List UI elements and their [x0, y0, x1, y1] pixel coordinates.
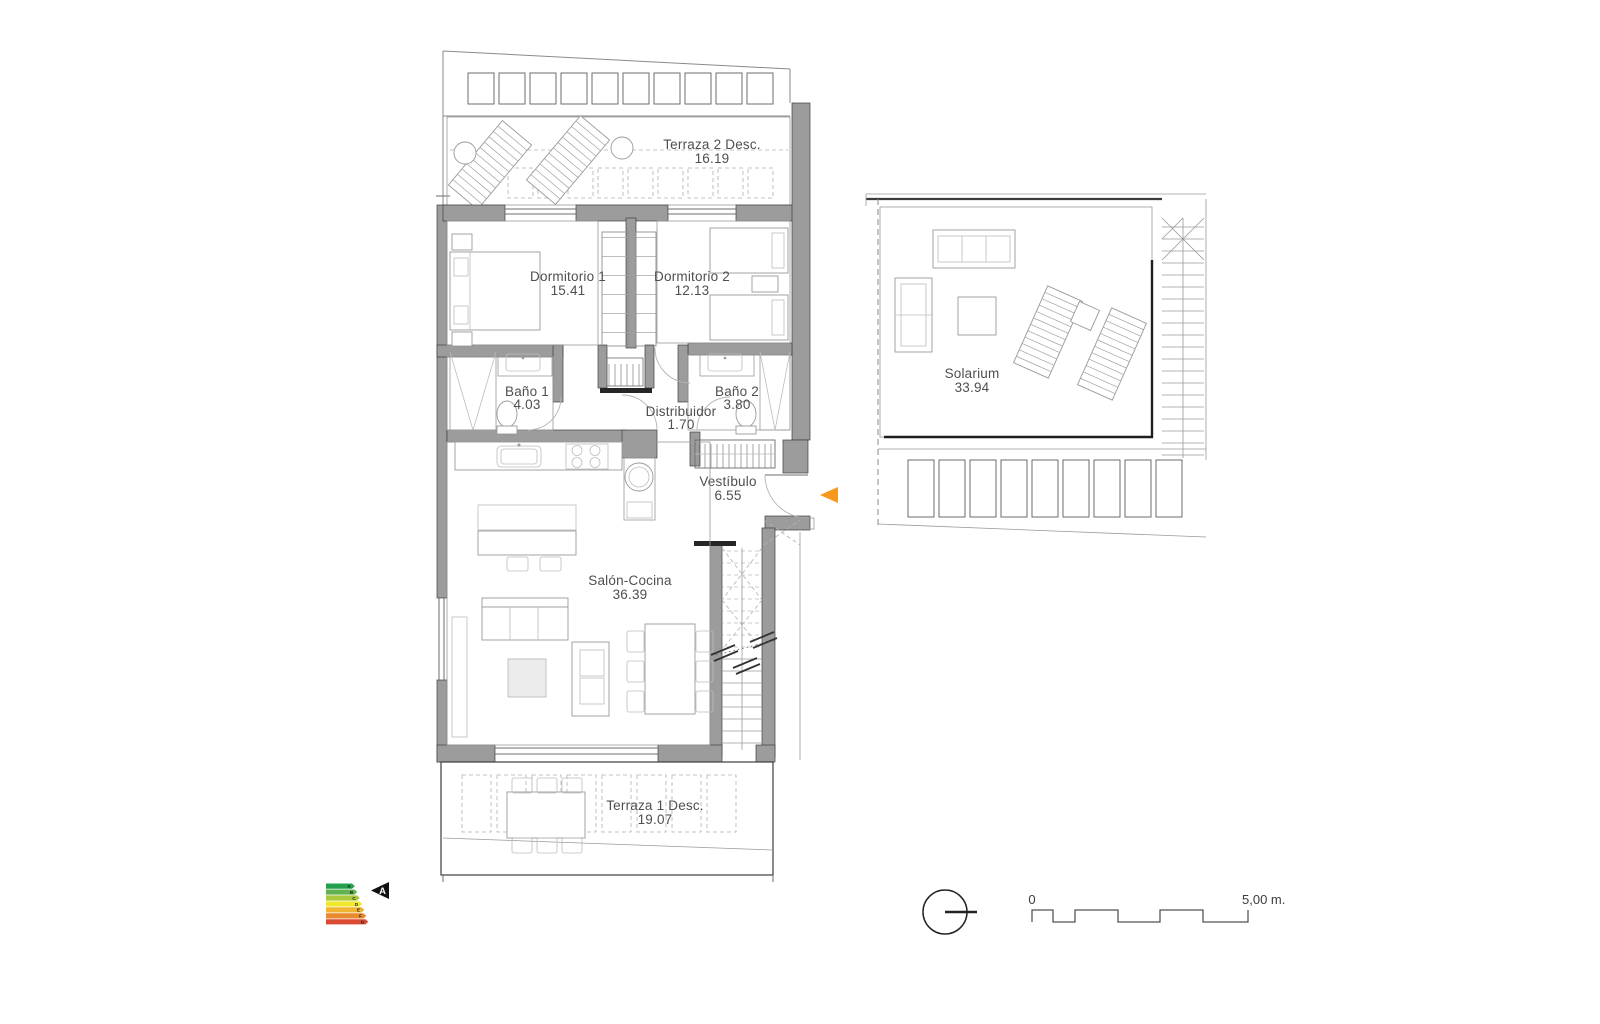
terrace1-slant-line — [443, 838, 773, 850]
room-bano-1: Baño 1 4.03 — [447, 350, 561, 434]
sun-lounger — [448, 121, 531, 210]
energy-letter: E — [357, 908, 360, 913]
single-bed — [710, 228, 788, 273]
room-area-solarium: 33.94 — [955, 380, 990, 395]
stair-arrival — [607, 358, 643, 386]
energy-letter: F — [359, 914, 362, 919]
round-table — [611, 137, 633, 159]
room-area-terraza-2: 16.19 — [695, 151, 730, 166]
room-dormitorio-1: Dormitorio 1 15.41 — [447, 221, 628, 346]
energy-letter: G — [361, 920, 365, 925]
room-label-salon-cocina: Salón-Cocina — [588, 573, 672, 588]
room-label-dormitorio-1: Dormitorio 1 — [530, 269, 606, 284]
scale-bar-zero: 0 — [1028, 892, 1035, 907]
room-area-terraza-1: 19.07 — [638, 812, 673, 827]
room-label-terraza-1: Terraza 1 Desc. — [606, 798, 704, 813]
room-area-distribuidor: 1.70 — [667, 417, 694, 432]
nightstand — [452, 234, 472, 250]
dining-table — [645, 624, 695, 714]
room-area-dormitorio-1: 15.41 — [551, 283, 586, 298]
room-label-vestibulo: Vestíbulo — [699, 474, 756, 489]
coffee-table — [508, 659, 546, 697]
stool — [540, 557, 561, 571]
room-label-dormitorio-2: Dormitorio 2 — [654, 269, 730, 284]
kitchen-island — [478, 505, 576, 530]
room-solarium: Solarium 33.94 — [866, 194, 1206, 537]
shower — [450, 352, 496, 430]
shower — [760, 352, 790, 430]
nightstand — [452, 332, 472, 346]
scale-bar-ruler — [1032, 910, 1248, 922]
room-area-bano-2: 3.80 — [723, 397, 750, 412]
solarium-table — [958, 297, 996, 335]
single-bed — [710, 295, 788, 340]
scale-bar-end: 5,00 m. — [1242, 892, 1285, 907]
room-area-bano-1: 4.03 — [513, 397, 540, 412]
room-area-salon-cocina: 36.39 — [613, 587, 648, 602]
stool — [507, 557, 528, 571]
living-window-west — [439, 598, 444, 680]
double-bed — [450, 252, 540, 330]
room-terraza-2: Terraza 2 Desc. 16.19 — [436, 51, 790, 209]
floor-plan-page: Terraza 2 Desc. 16.19 — [0, 0, 1600, 1024]
sun-lounger — [1014, 286, 1083, 378]
staircase — [711, 532, 800, 760]
round-table — [454, 142, 476, 164]
room-area-dormitorio-2: 12.13 — [675, 283, 710, 298]
room-label-terraza-2: Terraza 2 Desc. — [663, 137, 761, 152]
entrance-door-arc — [765, 475, 808, 518]
floor-plan-svg: Terraza 2 Desc. 16.19 — [0, 0, 1600, 1024]
outdoor-table — [507, 792, 585, 838]
room-label-solarium: Solarium — [945, 366, 1000, 381]
wardrobe — [602, 232, 628, 346]
orientation-symbol — [923, 890, 977, 934]
stair-lintel — [600, 388, 652, 393]
sink — [708, 354, 742, 371]
stair-lintel — [694, 541, 736, 546]
wardrobe — [636, 232, 656, 346]
sofa-back — [482, 598, 568, 607]
tv-unit — [452, 617, 467, 737]
room-dormitorio-2: Dormitorio 2 12.13 — [636, 221, 790, 346]
sofa — [482, 607, 568, 640]
room-area-vestibulo: 6.55 — [714, 488, 741, 503]
energy-rating-current: A — [379, 886, 386, 897]
loveseat — [572, 642, 609, 716]
pergola-squares — [468, 73, 773, 104]
energy-rating-label: A B C D E F G A — [326, 882, 389, 925]
solarium-slats — [908, 460, 1182, 517]
nightstand — [752, 276, 778, 292]
scale-bar: 0 5,00 m. — [1028, 892, 1285, 922]
entrance-arrow-icon — [820, 487, 838, 503]
room-bano-2: Baño 2 3.80 — [688, 350, 790, 434]
terrace-sliding-door — [495, 748, 658, 754]
room-salon-cocina: Salón-Cocina 36.39 — [447, 442, 713, 745]
room-terraza-1: Terraza 1 Desc. 19.07 — [441, 762, 773, 882]
